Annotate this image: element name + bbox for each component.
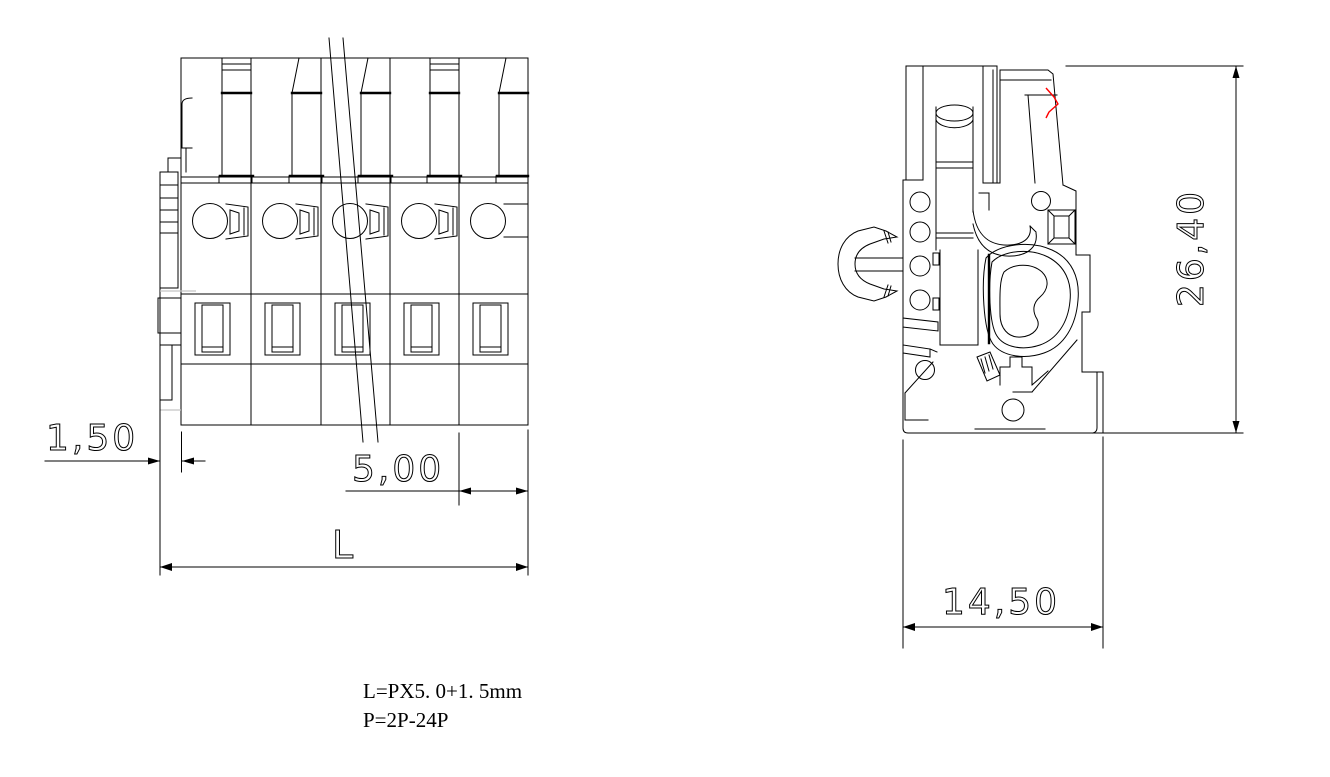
dim-text-depth: 14,50 [942, 582, 1060, 623]
side-view [838, 66, 1103, 433]
dimension-height: 26,40 [1066, 66, 1243, 433]
contact-window [404, 303, 439, 355]
lever-5 [496, 58, 528, 183]
plunger [936, 105, 989, 345]
side-lever [1000, 70, 1063, 185]
wire-entry-circle [471, 204, 506, 239]
dim-text-height: 26,40 [1171, 189, 1212, 307]
contact-window [335, 303, 370, 355]
lever-4 [427, 58, 461, 183]
dimension-pitch: 5,00 [346, 433, 528, 505]
cell-dividers [251, 58, 459, 425]
drawing-canvas: 1,50 5,00 L [0, 0, 1330, 777]
spring-cavity [983, 244, 1078, 356]
dim-text-pitch: 5,00 [352, 449, 444, 490]
note-length-formula: L=PX5. 0+1. 5mm [363, 679, 522, 703]
notes: L=PX5. 0+1. 5mm P=2P-24P [363, 679, 522, 732]
lever-2 [289, 58, 323, 183]
dimension-depth: 14,50 [903, 437, 1103, 648]
front-view [158, 38, 528, 442]
contact-window [195, 303, 230, 355]
test-port-square [1048, 210, 1075, 244]
wire-entry-circle [333, 204, 368, 239]
lever-3 [358, 58, 392, 183]
latch-clip [838, 227, 903, 301]
break-line [329, 38, 363, 442]
note-pole-range: P=2P-24P [363, 708, 448, 732]
end-wall-profile [158, 98, 196, 425]
dim-text-total-length: L [332, 523, 353, 567]
contact-window [265, 303, 300, 355]
lever-1 [219, 58, 253, 183]
contact-window [473, 303, 508, 355]
dimension-total-length: L [160, 430, 528, 575]
wire-entry-circle [402, 204, 437, 239]
wire-funnel [973, 210, 1036, 256]
side-outline [903, 66, 1103, 433]
wire-entry-circle [193, 204, 228, 239]
clamp-profile [226, 204, 528, 239]
dimension-end-margin: 1,50 [45, 402, 205, 575]
dim-text-end-margin: 1,50 [46, 418, 138, 459]
wire-entry-circle [263, 204, 298, 239]
front-outline [181, 58, 528, 425]
